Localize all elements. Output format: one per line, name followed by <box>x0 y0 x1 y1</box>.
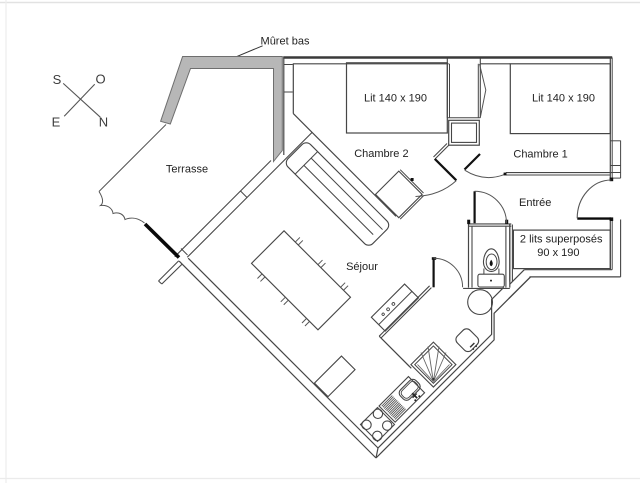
svg-text:2 lits superposés: 2 lits superposés <box>520 234 603 246</box>
svg-text:Lit 140 x 190: Lit 140 x 190 <box>364 93 427 105</box>
svg-text:N: N <box>99 115 108 130</box>
svg-text:Mûret bas: Mûret bas <box>261 36 310 48</box>
svg-text:Terrasse: Terrasse <box>166 164 208 176</box>
svg-text:Chambre 1: Chambre 1 <box>513 149 567 161</box>
svg-text:Séjour: Séjour <box>346 261 378 273</box>
svg-text:Lit 140 x 190: Lit 140 x 190 <box>532 93 595 105</box>
svg-text:Entrée: Entrée <box>519 197 551 209</box>
svg-text:90 x 190: 90 x 190 <box>537 247 579 259</box>
svg-text:S: S <box>53 72 62 87</box>
svg-text:E: E <box>52 115 61 130</box>
svg-text:O: O <box>95 72 105 87</box>
svg-text:Chambre 2: Chambre 2 <box>354 148 408 160</box>
